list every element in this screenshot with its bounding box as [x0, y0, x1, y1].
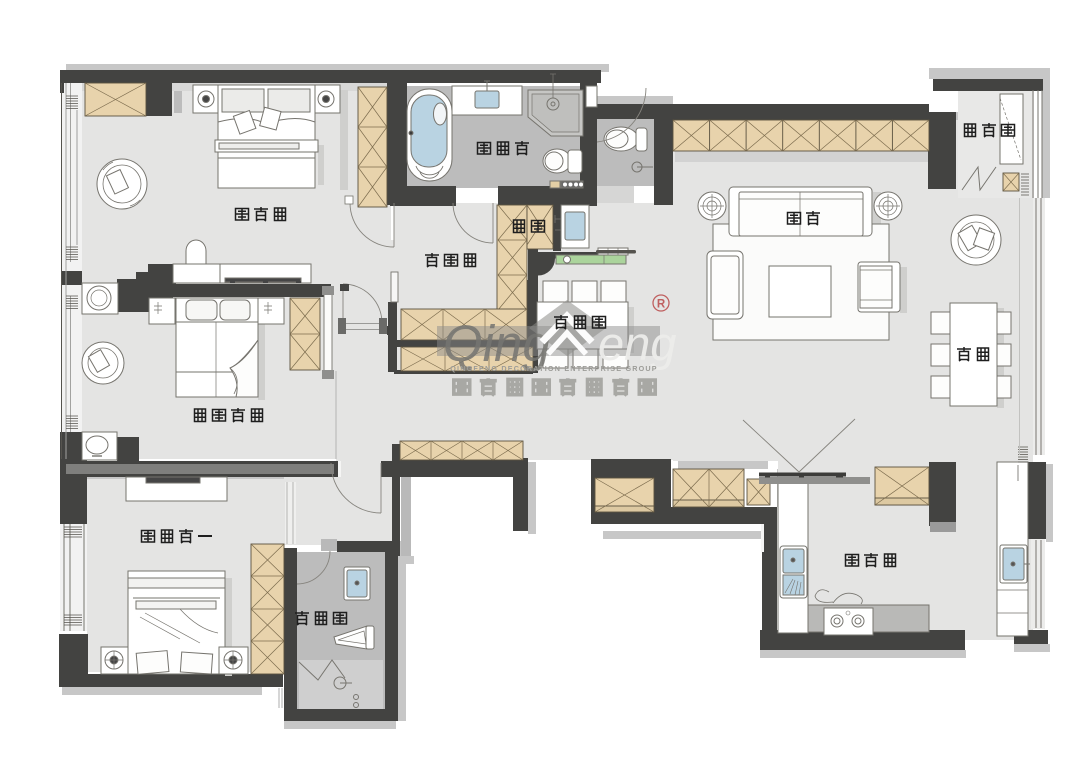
- svg-text:eng: eng: [598, 317, 676, 370]
- svg-text:QINGFENG DECORATION ENTERPRI: QINGFENG DECORATION ENTERPRISE GROUP: [450, 364, 658, 373]
- svg-text:R: R: [657, 299, 666, 311]
